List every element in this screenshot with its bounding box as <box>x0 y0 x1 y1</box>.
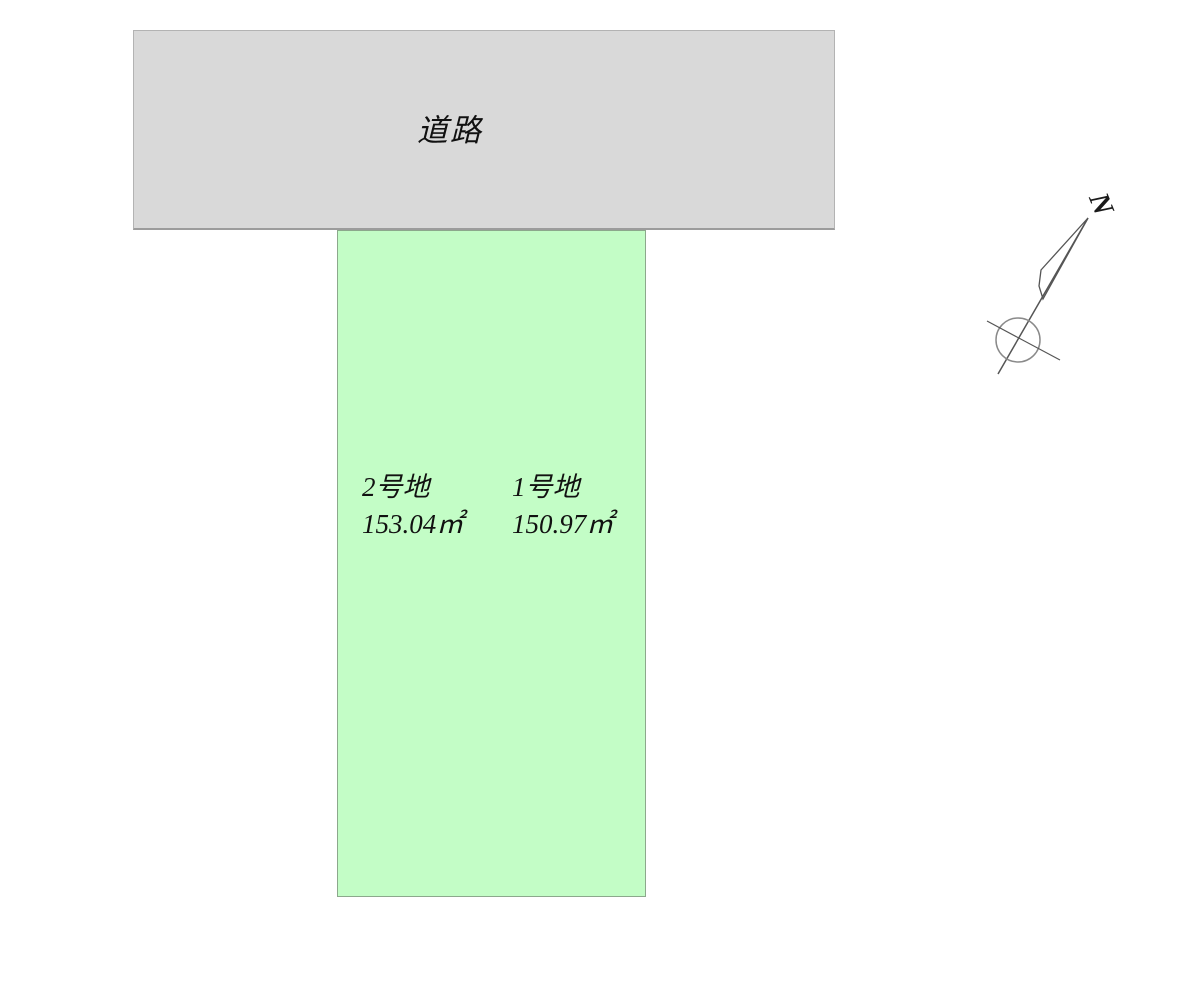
road-area: 道路 <box>133 30 835 230</box>
site-plan-diagram: 道路 2号地 153.04㎡ 1号地 150.97㎡ N <box>0 0 1200 988</box>
lot-2-area: 153.04㎡ <box>362 506 463 543</box>
lot-1-label: 1号地 150.97㎡ <box>512 469 613 543</box>
lot-2-label: 2号地 153.04㎡ <box>362 469 463 543</box>
lot-parcel-1: 1号地 150.97㎡ <box>491 230 646 897</box>
lot-parcel-2: 2号地 153.04㎡ <box>337 230 492 897</box>
compass-cross-line <box>987 321 1060 360</box>
compass-needle-vane <box>1039 218 1088 299</box>
lot-1-name: 1号地 <box>512 469 613 506</box>
lot-2-name: 2号地 <box>362 469 463 506</box>
road-label: 道路 <box>417 105 483 150</box>
north-compass: N <box>975 183 1125 388</box>
north-label: N <box>1082 187 1120 220</box>
lot-1-area: 150.97㎡ <box>512 506 613 543</box>
